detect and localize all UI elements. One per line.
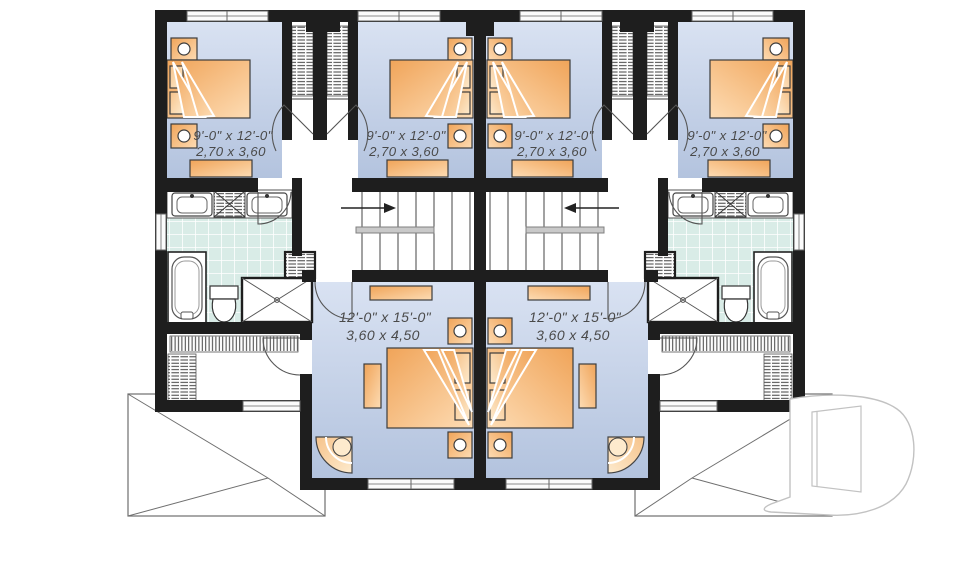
master-dimension-label: 3,60 x 4,50 [346, 327, 420, 343]
bedroom-dimension-label: 2,70 x 3,60 [195, 144, 266, 159]
master-dimension-label: 12'-0" x 15'-0" [339, 309, 432, 325]
bedroom-dimension-label: 9'-0" x 12'-0" [366, 128, 446, 143]
master-dimension-label: 12'-0" x 15'-0" [529, 309, 622, 325]
bedroom-dimension-label: 2,70 x 3,60 [516, 144, 587, 159]
bedroom-dimension-label: 2,70 x 3,60 [368, 144, 439, 159]
bedroom-dimension-label: 9'-0" x 12'-0" [193, 128, 273, 143]
floor-plan-page: 9'-0" x 12'-0" 2,70 x 3,60 9'-0" x 12'-0… [0, 0, 960, 569]
unit-left [128, 10, 486, 516]
master-dimension-label: 3,60 x 4,50 [536, 327, 610, 343]
bedroom-dimension-label: 9'-0" x 12'-0" [687, 128, 767, 143]
unit-right-mirrored [474, 10, 832, 516]
floor-plan-drawing: 9'-0" x 12'-0" 2,70 x 3,60 9'-0" x 12'-0… [0, 0, 960, 569]
bedroom-dimension-label: 2,70 x 3,60 [689, 144, 760, 159]
bedroom-dimension-label: 9'-0" x 12'-0" [514, 128, 594, 143]
